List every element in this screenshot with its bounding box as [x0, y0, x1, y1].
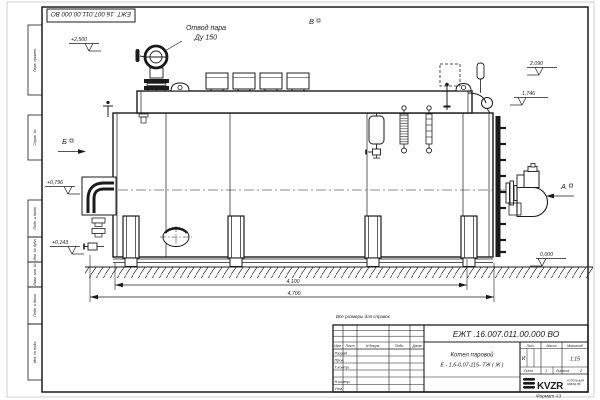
elevation-value: +0,796	[47, 180, 63, 186]
lifting-lug-rear	[456, 84, 471, 92]
lit-value: И	[522, 356, 526, 362]
elevation-value: +2,500	[71, 37, 87, 43]
mass-header: Масса	[546, 344, 556, 348]
boiler-body	[100, 113, 505, 257]
scale-header: Масштаб	[567, 344, 583, 348]
stamp-perv-primen: Перв. примен.	[33, 48, 37, 72]
scale-value: 1:15	[570, 357, 580, 363]
view-v-label: В	[309, 17, 314, 26]
col-podp: Подп.	[395, 344, 404, 348]
elevation-value: 2,090	[529, 61, 543, 67]
stamp-inv-dubl: Инв. № дубл.	[33, 238, 37, 260]
elevation-value: 0,000	[540, 252, 553, 258]
burner-motor	[524, 171, 539, 188]
safety-valve-box	[260, 73, 282, 92]
stamp-podp-data-1: Подп. и дата	[33, 207, 37, 230]
dim-overall-length: 4,700	[288, 291, 301, 297]
row-nkontr: Н.контр.	[335, 380, 351, 384]
safety-valve-box	[206, 73, 228, 92]
view-a-label: А	[560, 182, 566, 191]
elevation-value: +0,143	[52, 240, 68, 246]
col-data: Дата	[411, 344, 421, 348]
burner-volute	[517, 188, 548, 217]
view-b-label: Б	[62, 137, 67, 146]
lit-header: Лит.	[526, 344, 535, 348]
row-razrab: Разраб.	[335, 352, 349, 356]
kvzr-logo-text: KVZR	[537, 381, 564, 392]
support-leg	[365, 216, 381, 267]
sheet-label: Лист	[523, 369, 533, 373]
row-utv: Утв.	[335, 387, 344, 391]
stamp-inv-podl: Инв. № подл.	[33, 341, 37, 363]
stamp-podp-data-2: Подп. и дата	[33, 294, 37, 317]
row-tkontr: Т.контр.	[335, 366, 350, 370]
ground	[85, 267, 593, 278]
stamp-vzam-inv: Взам. инв. №	[33, 263, 37, 285]
support-leg	[461, 216, 477, 267]
col-izm: Изм.	[334, 344, 341, 348]
steam-outlet-label-2: Ду 150	[194, 35, 217, 42]
lifting-lug-front	[171, 83, 189, 91]
logo-caption-2: ЗАВОД РФ	[567, 382, 581, 386]
col-dokum: N докум.	[366, 344, 380, 348]
front-duct-box	[82, 177, 116, 215]
format-note: Формат А3	[536, 394, 562, 399]
steam-drum	[137, 91, 472, 113]
sheet-value: 1	[545, 369, 547, 373]
row-prov: Пров.	[335, 359, 345, 363]
steam-outlet-label-1: Отвод пара	[186, 24, 226, 32]
stamp-sprav-no: Справ. №	[33, 129, 37, 145]
reference-note: Все размеры для справок	[336, 314, 391, 319]
support-leg	[228, 216, 244, 267]
title-doc-number: ЕЖТ .16.007.011.00.000 ВО	[453, 329, 560, 339]
safety-valve-box	[233, 73, 255, 92]
drawing-sheet: Перв. примен. Справ. № Подп. и дата Инв.…	[0, 0, 600, 400]
sheets-label: Листов	[555, 369, 569, 373]
support-leg	[123, 216, 139, 267]
product-name-2: Е - 1,6-0,07-115- ТЖ ( Ж )	[440, 363, 503, 369]
safety-valve-box	[287, 73, 309, 92]
logo-caption-1: КОТЕЛЬНЫЙ	[567, 379, 584, 383]
valve-handwheel	[136, 49, 140, 62]
elevation-value: 1,746	[522, 91, 535, 97]
top-doc-number: ЕЖТ .16.007.011.00.000 ВО	[51, 10, 131, 17]
col-list: Лист	[344, 344, 354, 348]
product-name-1: Котел паровой	[450, 352, 494, 359]
dim-boiler-length: 4,100	[287, 279, 300, 285]
